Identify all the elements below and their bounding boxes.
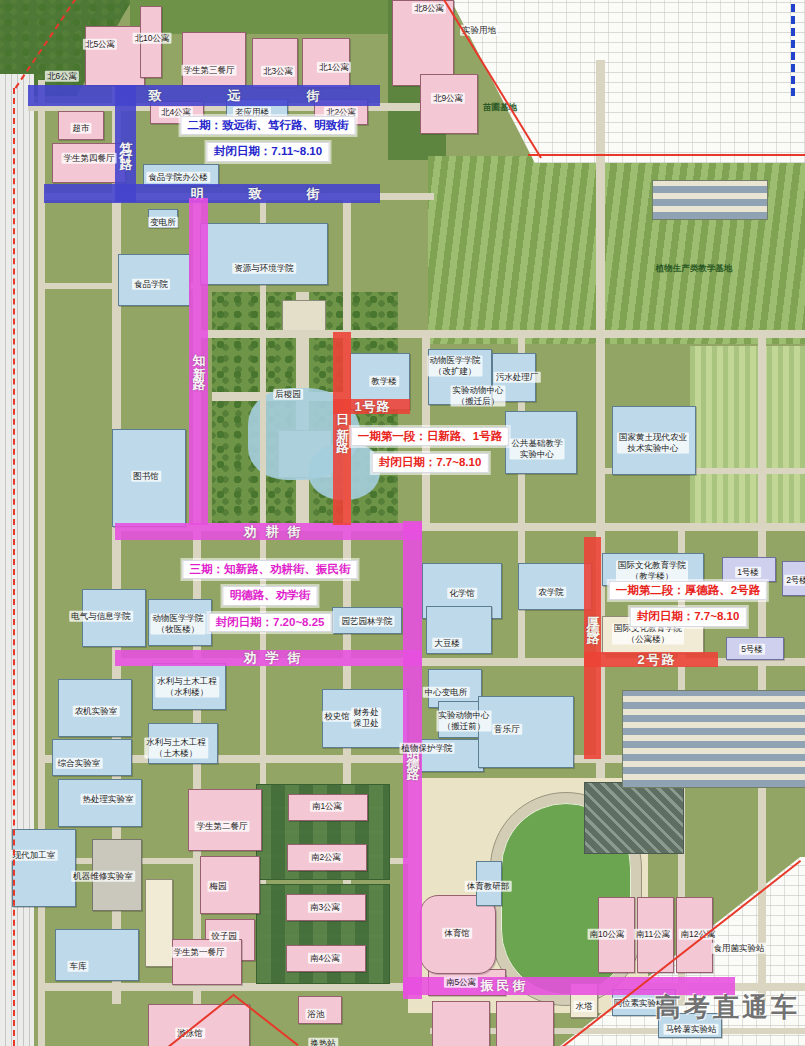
building-label: 北1公寓	[317, 62, 351, 73]
building-label: 实验动物中心（搬迁前）	[437, 710, 492, 731]
building-label: 农学院	[536, 587, 566, 598]
building-label: 南1公寓	[310, 801, 344, 812]
building-label: 浴池	[306, 1009, 327, 1020]
building-label: 污水处理厂	[494, 372, 541, 383]
closed-road-road1: 1号路	[333, 399, 410, 414]
closed-road-zhixin: 知新路	[189, 198, 208, 525]
building-label: 农机实验室	[73, 706, 120, 717]
watermark: 高考直通车	[655, 990, 800, 1025]
closure-note-line: 三期：知新路、劝耕街、振民街	[183, 560, 358, 579]
building-label: 北3公寓	[261, 66, 295, 77]
building-label: 马铃薯实验站	[664, 1024, 719, 1035]
road-segment	[758, 330, 766, 1005]
building-label: 1号楼	[735, 567, 761, 578]
building-label: 资源与环境学院	[232, 263, 296, 274]
building-block	[420, 74, 478, 134]
building-label: 南5公寓	[444, 977, 478, 988]
building-label: 大豆楼	[432, 638, 462, 649]
building-label: 热处理实验室	[81, 794, 136, 805]
building-label: 食品学院	[132, 279, 170, 290]
closure-note-line: 二期：致远街、笃行路、明致街	[181, 116, 356, 135]
field-area-east	[690, 346, 805, 526]
closed-road-houde: 厚德路	[584, 537, 601, 759]
building-block	[200, 223, 328, 285]
closed-road-mingzhi: 明致街	[44, 184, 380, 203]
road-segment	[195, 330, 805, 338]
building-label: 北6公寓	[45, 71, 79, 82]
building-block	[55, 929, 139, 981]
building-label: 体育教研部	[465, 881, 512, 892]
building-label: 水塔	[574, 1001, 595, 1012]
closure-note-phase3: 三期：知新路、劝耕街、振民街明德路、劝学街封闭日期：7.20~8.25	[183, 560, 358, 632]
building-label: 后稷园	[273, 389, 303, 400]
closed-road-quangeng: 劝耕街	[115, 523, 422, 540]
road-label-quangeng: 劝耕街	[235, 523, 310, 541]
building-label: 饺子园	[209, 931, 239, 942]
greenhouse-rows	[622, 690, 805, 788]
building-label: 中心变电所	[423, 687, 470, 698]
building-label: 梅园	[208, 881, 229, 892]
building-label: 5号楼	[739, 644, 765, 655]
closure-note-line: 明德路、劝学街	[223, 586, 318, 605]
closure-note-line: 封闭日期：7.7~8.10	[372, 453, 489, 472]
road-label-houde: 厚德路	[584, 598, 602, 630]
road-label-quanxue: 劝学街	[235, 649, 310, 667]
building-block	[182, 32, 246, 86]
hatched-courts-area	[584, 782, 684, 854]
building-block	[252, 38, 298, 88]
building-label: 北9公寓	[431, 93, 465, 104]
building-label: 财务处保卫处	[351, 707, 381, 728]
closed-road-quanxue: 劝学街	[115, 650, 422, 666]
building-label: 教学楼	[369, 376, 399, 387]
building-label: 音乐厅	[492, 724, 522, 735]
building-block	[432, 1001, 490, 1046]
road-label-zhixin: 知新路	[190, 332, 208, 380]
building-label: 食用菌实验站	[712, 943, 767, 954]
closed-road-road2: 2号路	[584, 652, 718, 667]
closed-road-mingde: 明德路	[403, 521, 422, 999]
building-block	[148, 1004, 250, 1046]
closure-note-line: 封闭日期：7.7~8.10	[630, 607, 747, 626]
road-label-duxing: 笃行路	[117, 124, 135, 156]
building-label: 食品学院办公楼	[146, 172, 210, 183]
building-label: 2号楼	[784, 575, 805, 586]
building-label: 水利与土木工程（土木楼）	[144, 737, 208, 758]
road-label-mingzhi: 明致街	[146, 185, 365, 203]
building-label: 水利与土木工程（水利楼）	[155, 676, 219, 697]
building-label: 南11公寓	[634, 929, 672, 940]
building-label: 植物保护学院	[400, 743, 455, 754]
building-label: 北10公寓	[133, 33, 172, 44]
building-label: 学生第二餐厅	[195, 821, 250, 832]
building-label: 化学馆	[447, 588, 477, 599]
building-label: 植物生产类教学基地	[654, 263, 735, 274]
building-label: 图书馆	[131, 471, 161, 482]
closure-note-line: 封闭日期：7.20~8.25	[209, 613, 332, 632]
closed-road-zhiyuan: 致远街	[28, 85, 380, 106]
closed-road-rixin: 日新路	[333, 332, 351, 525]
building-label: 南2公寓	[309, 852, 343, 863]
building-label: 实验动物中心（搬迁后）	[451, 385, 506, 406]
building-label: 公共基础教学实验中心	[510, 438, 565, 459]
blue-boundary-dashed	[791, 4, 795, 96]
building-label: 国际文化教育学院（教学楼）	[616, 560, 688, 581]
building-label: 南4公寓	[308, 953, 342, 964]
building-label: 北5公寓	[83, 39, 117, 50]
road-label-zhenmin: 振民街	[478, 977, 529, 995]
building-label: 校史馆	[322, 711, 352, 722]
building-label: 机器维修实验室	[71, 871, 135, 882]
building-label: 超市	[71, 123, 92, 134]
building-label: 综合实验室	[56, 758, 103, 769]
closure-note-line: 一期第二段：厚德路、2号路	[609, 581, 767, 600]
building-label: 动物医学学院（改扩建）	[428, 355, 483, 376]
lawn-strip	[130, 0, 392, 34]
road-label-road2: 2号路	[635, 651, 676, 669]
building-label: 学生第四餐厅	[62, 153, 117, 164]
road-label-road1: 1号路	[353, 398, 390, 416]
campus-closure-map: 致远街笃行路明致街知新路劝耕街劝学街明德路振民街日新路1号路厚德路2号路 北5公…	[0, 0, 805, 1046]
closure-note-line: 一期第一段：日新路、1号路	[351, 427, 509, 446]
building-label: 北8公寓	[412, 3, 446, 14]
closure-note-line: 封闭日期：7.11~8.10	[207, 142, 329, 161]
building-label: 变电所	[148, 217, 178, 228]
closure-note-phase1b: 一期第二段：厚德路、2号路封闭日期：7.7~8.10	[609, 581, 767, 627]
building-block	[496, 1001, 554, 1046]
campus-boundary-line	[528, 154, 805, 156]
building-label: 国家黄土现代农业技术实验中心	[617, 432, 689, 453]
building-block	[145, 879, 173, 967]
building-label: 现代加工室	[11, 850, 58, 861]
building-label: 车库	[68, 961, 89, 972]
building-label: 南10公寓	[588, 929, 627, 940]
closure-note-phase2: 二期：致远街、笃行路、明致街封闭日期：7.11~8.10	[181, 116, 356, 162]
building-block	[12, 829, 76, 907]
greenhouse-rows	[652, 180, 768, 220]
building-label: 电气与信息学院	[69, 611, 133, 622]
campus-boundary-dashed	[13, 88, 15, 1046]
road-label-rixin: 日新路	[333, 389, 351, 445]
building-label: 国际文化教育学院（公寓楼）	[612, 623, 684, 644]
closure-note-phase1a: 一期第一段：日新路、1号路封闭日期：7.7~8.10	[351, 427, 509, 473]
building-label: 学生第一餐厅	[172, 947, 227, 958]
building-label: 南3公寓	[308, 902, 342, 913]
building-label: 学生第三餐厅	[182, 65, 237, 76]
building-label: 换热站	[308, 1038, 338, 1046]
building-label: 体育馆	[442, 928, 472, 939]
